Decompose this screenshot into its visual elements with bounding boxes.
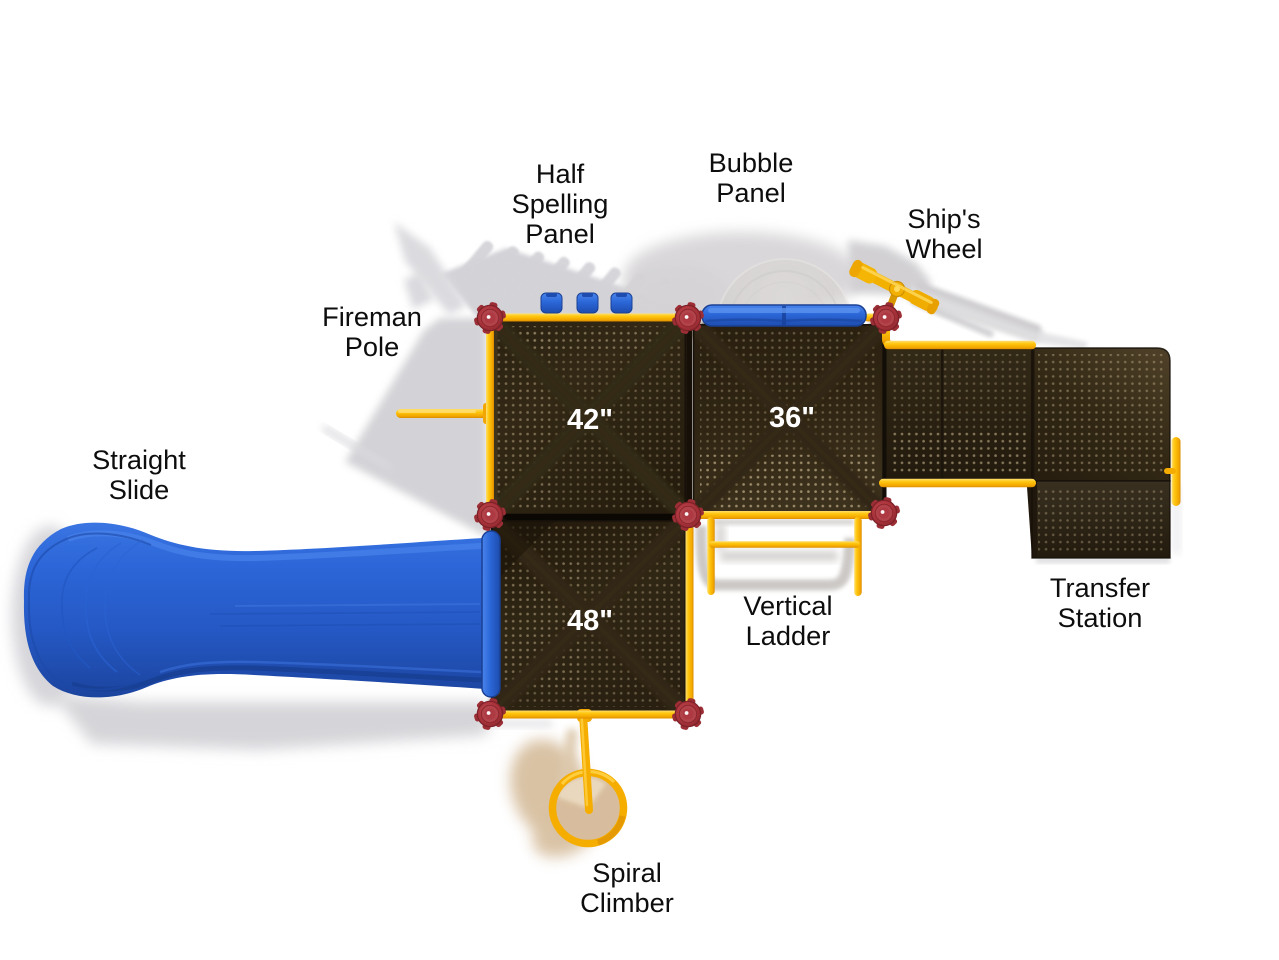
svg-text:Straight: Straight	[92, 444, 186, 475]
svg-text:36": 36"	[769, 402, 815, 434]
svg-text:Panel: Panel	[525, 218, 595, 249]
svg-text:48": 48"	[567, 605, 613, 637]
svg-text:Transfer: Transfer	[1050, 572, 1150, 603]
svg-text:Climber: Climber	[580, 887, 674, 918]
svg-text:Ladder: Ladder	[746, 620, 831, 651]
svg-text:Ship's: Ship's	[907, 203, 980, 234]
svg-text:Spiral: Spiral	[592, 857, 662, 888]
svg-text:Wheel: Wheel	[905, 233, 982, 264]
svg-text:Bubble: Bubble	[709, 147, 794, 178]
svg-text:Half: Half	[536, 158, 585, 189]
svg-text:Fireman: Fireman	[322, 301, 422, 332]
svg-text:Station: Station	[1058, 602, 1143, 633]
svg-text:Slide: Slide	[109, 474, 169, 505]
svg-text:Vertical: Vertical	[743, 590, 832, 621]
svg-text:Panel: Panel	[716, 177, 786, 208]
svg-text:Spelling: Spelling	[512, 188, 609, 219]
svg-text:Pole: Pole	[345, 331, 399, 362]
svg-text:42": 42"	[567, 404, 613, 436]
